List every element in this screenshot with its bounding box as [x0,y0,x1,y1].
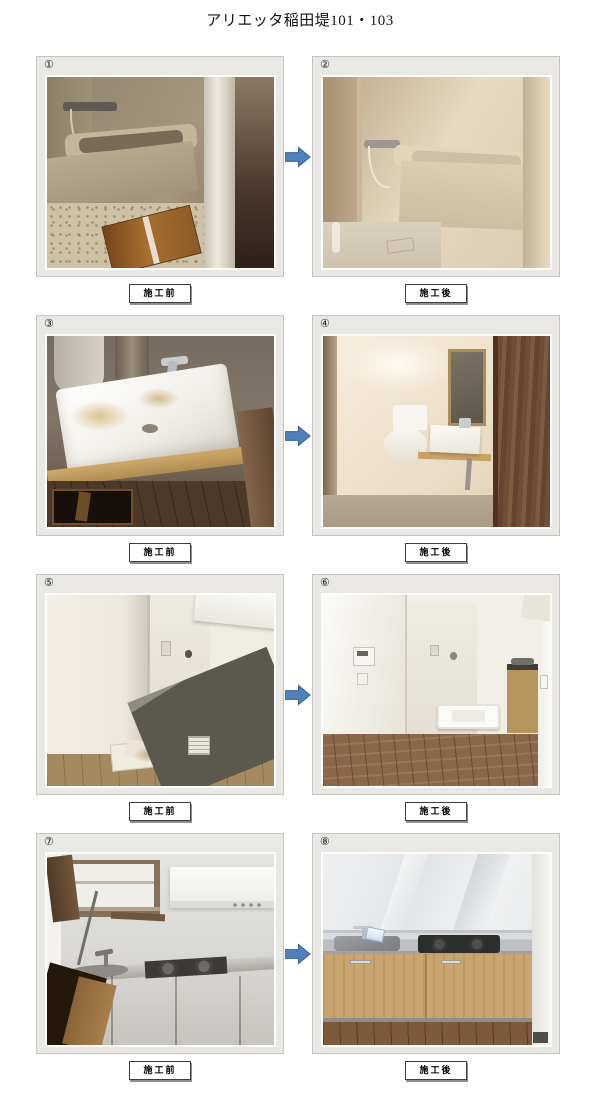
caption-row-1: 施工前 施工後 [36,277,600,303]
panel-after-2: ④ [312,315,560,536]
remote-screen [357,651,368,657]
vanity-leg [465,458,472,491]
before-label: 施工前 [129,802,190,821]
arrow-gap [284,315,312,536]
photo-kitchen-after [321,852,552,1047]
after-label: 施工後 [405,284,466,303]
kitchen-sink [511,658,534,665]
bathtub-front [399,161,542,231]
photo-washroom-after [321,334,552,529]
open-floor-hatch [52,489,134,525]
comparison-row-4: ⑦ [36,833,600,1054]
kitchen-counter [507,664,539,671]
wood-floor [323,1022,550,1045]
shower-hose [368,146,388,188]
arrow-gap [284,56,312,277]
caption-gap [284,802,312,821]
cabinet-shelf [67,907,160,911]
control-panel [188,736,211,755]
right-wall [532,854,550,1045]
caption-cell: 施工前 [36,802,284,821]
open-cabinet-flap [110,912,165,922]
caption-cell: 施工後 [312,802,560,821]
door-handle [441,960,461,964]
hood-vents [231,903,265,908]
before-label: 施工前 [129,543,190,562]
switch-plate [540,675,549,688]
bath-remote-panel [353,647,376,666]
comparison-row-2: ③ ④ [36,315,600,536]
cabinet-interior [67,864,153,912]
bath-floor [323,222,441,268]
pan-inner [452,710,485,722]
caption-row-4: 施工前 施工後 [36,1054,600,1080]
caption-row-3: 施工前 施工後 [36,795,600,821]
grab-bar [332,222,340,253]
arrow-gap [284,833,312,1054]
gas-stove [418,935,500,953]
washbasin [429,424,480,453]
circled-number-1: ① [44,60,54,71]
wall [323,77,357,230]
kitchen-cabinet [507,670,539,733]
after-label: 施工後 [405,1061,466,1080]
right-arrow-icon [285,146,311,168]
page-title: アリエッタ稲田堤101・103 [0,9,600,30]
right-arrow-icon [285,943,311,965]
circled-number-7: ⑦ [44,837,54,848]
floor-joist [75,492,91,522]
base-cabinets [323,954,532,1018]
after-label: 施工後 [405,543,466,562]
wall-panel [523,77,550,268]
ceiling-light-glow [341,336,455,393]
caption-cell: 施工前 [36,543,284,562]
arrow-gap [284,574,312,795]
washer-pan [437,704,501,729]
photo-washbasin-before [45,334,276,529]
panel-before-2: ③ [36,315,284,536]
caption-cell: 施工後 [312,284,560,303]
caption-gap [284,543,312,562]
photo-bathtub-before [45,75,276,270]
comparison-row-3: ⑤ ⑥ [36,574,600,795]
caption-gap [284,284,312,303]
outlet-plate [161,641,171,656]
cabinet-seam [425,954,427,1018]
toilet-tank [393,405,427,430]
faucet [94,948,113,956]
circled-number-8: ⑧ [320,837,330,848]
floor-vent [533,1032,548,1043]
circled-number-3: ③ [44,319,54,330]
before-label: 施工前 [129,1061,190,1080]
wood-floor [323,734,550,786]
wood-wall [498,336,550,527]
wall-reflection [450,854,510,940]
floor [323,495,500,527]
comparison-row-1: ① ② [36,56,600,277]
mirror [448,349,487,425]
circled-number-2: ② [320,60,330,71]
board-stripe [142,216,160,264]
laundry-tap [450,652,457,660]
stain [70,401,129,432]
after-label: 施工後 [405,802,466,821]
before-label: 施工前 [129,284,190,303]
panel-after-4: ⑧ [312,833,560,1054]
caption-cell: 施工前 [36,1061,284,1080]
photo-bathtub-after [321,75,552,270]
circled-number-6: ⑥ [320,578,330,589]
panel-after-1: ② [312,56,560,277]
circled-number-5: ⑤ [44,578,54,589]
right-arrow-icon [285,425,311,447]
range-hood-edge [521,593,552,622]
wall-reflection [377,854,428,940]
panel-before-4: ⑦ [36,833,284,1054]
stain [138,388,179,409]
caption-cell: 施工前 [36,284,284,303]
caption-cell: 施工後 [312,1061,560,1080]
faucet [459,418,470,428]
panel-after-3: ⑥ [312,574,560,795]
document-page: アリエッタ稲田堤101・103 ① ② [0,0,600,1099]
caption-row-2: 施工前 施工後 [36,536,600,562]
door-frame [204,77,236,268]
outlet-plate [430,645,439,656]
light-switch [357,673,368,684]
right-wall [538,595,550,786]
caption-gap [284,1061,312,1080]
photo-laundry-after [321,593,552,788]
photo-kitchen-before [45,852,276,1047]
hallway-floor [235,77,274,268]
photo-laundry-before [45,593,276,788]
cabinet-shelf [67,881,153,884]
circled-number-4: ④ [320,319,330,330]
right-arrow-icon [285,684,311,706]
wall-corner [357,77,362,234]
panel-before-3: ⑤ [36,574,284,795]
caption-cell: 施工後 [312,543,560,562]
door-handle [350,960,370,964]
panel-before-1: ① [36,56,284,277]
